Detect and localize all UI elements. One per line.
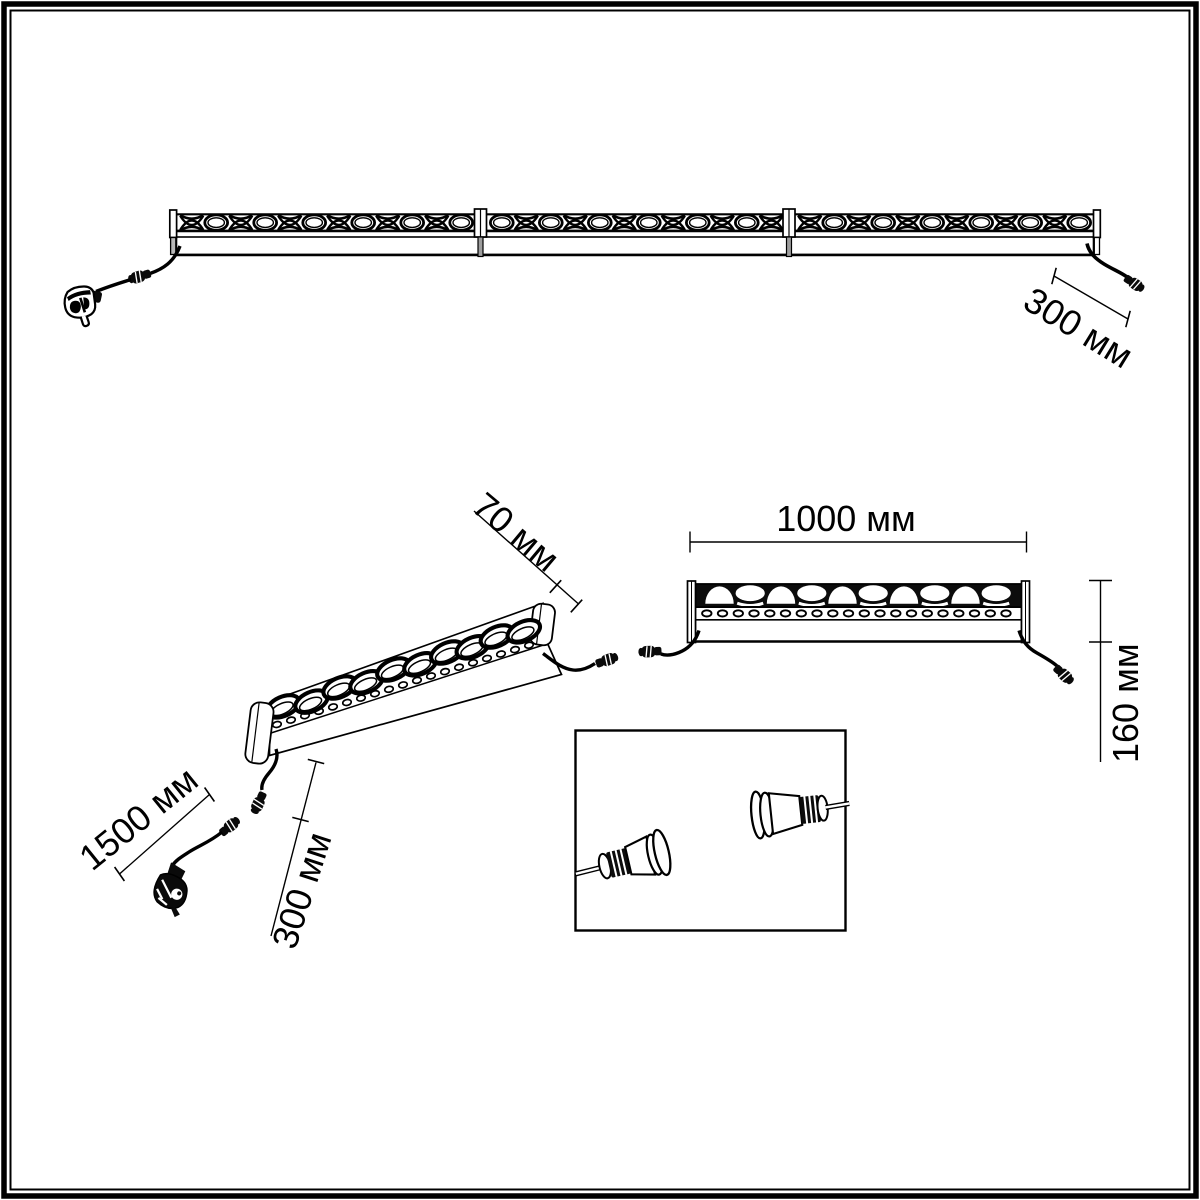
svg-text:1000 мм: 1000 мм	[776, 498, 916, 539]
svg-text:160 мм: 160 мм	[1105, 643, 1146, 763]
